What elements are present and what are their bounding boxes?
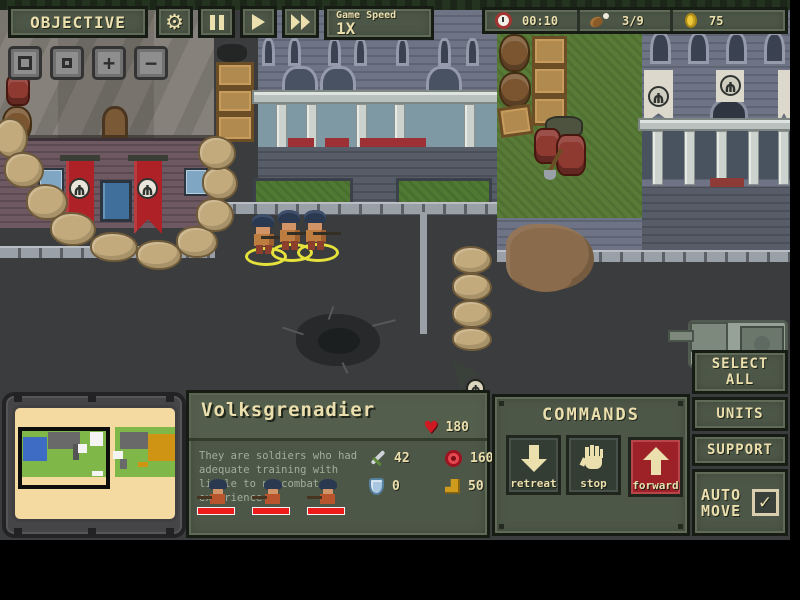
sandbag — [452, 327, 492, 351]
window — [328, 38, 341, 66]
commands-panel: COMMANDS retreat stop forward — [492, 394, 690, 536]
faction-emblem-icon: Ψ — [142, 181, 153, 196]
fast-forward-icon — [291, 14, 300, 30]
stop-hand-icon — [580, 445, 608, 475]
select-all-button[interactable]: SELECT ALL — [692, 350, 788, 394]
squad-member-card[interactable] — [307, 479, 351, 517]
resource-bar: 00:10 3/9 75 — [482, 7, 788, 34]
red-carpet — [288, 138, 314, 147]
sandbag — [90, 232, 138, 262]
play-button[interactable] — [240, 6, 277, 38]
sandbag — [136, 240, 182, 270]
sandbag — [198, 136, 236, 170]
faction-emblem-icon: Ψ — [74, 181, 85, 196]
squad-member-card[interactable] — [197, 479, 241, 517]
armor-icon — [369, 478, 384, 495]
settings-button[interactable]: ⚙ — [156, 6, 193, 38]
fast-forward-button[interactable] — [282, 6, 319, 38]
auto-move-label: AUTO MOVE — [701, 487, 751, 519]
minimap[interactable] — [12, 405, 178, 522]
objective-button[interactable]: OBJECTIVE — [8, 6, 148, 38]
boot-value: 50 — [468, 479, 484, 494]
gold-count: 75 — [709, 14, 723, 28]
zoom-in-button[interactable]: + — [92, 46, 126, 80]
red-carpet — [360, 138, 426, 147]
objective-label: OBJECTIVE — [30, 13, 126, 32]
attack-icon — [369, 450, 386, 467]
door — [100, 180, 132, 222]
health-icon: ♥ — [423, 421, 438, 435]
crate-tilted — [497, 104, 534, 138]
curb — [420, 212, 427, 334]
gear-icon: ⚙ — [165, 12, 184, 32]
sandbag — [452, 273, 492, 301]
window — [396, 38, 409, 66]
stop-label: stop — [580, 477, 607, 490]
retreat-arrow-icon — [521, 445, 547, 475]
squad-member-card[interactable] — [252, 479, 296, 517]
awning — [252, 90, 503, 104]
select-all-label: SELECT ALL — [708, 356, 772, 388]
soldier-unit[interactable] — [304, 210, 344, 262]
pause-button[interactable] — [198, 6, 235, 38]
units-button[interactable]: UNITS — [692, 397, 788, 431]
member-hp-bar — [197, 507, 235, 515]
red-carpet — [710, 178, 744, 187]
check-icon: ✓ — [758, 495, 773, 511]
play-icon — [252, 14, 265, 30]
auto-move-toggle[interactable]: AUTO MOVE ✓ — [692, 469, 788, 536]
target-icon — [445, 450, 462, 467]
retreat-label: retreat — [510, 477, 556, 490]
boot-icon — [445, 479, 460, 494]
wooden-barrel — [499, 34, 530, 72]
game-speed-value: 1X — [336, 21, 355, 36]
faction-emblem-icon: Ψ — [725, 78, 736, 93]
window — [354, 38, 367, 66]
white-banner: Ψ — [716, 70, 744, 102]
minimap-viewport[interactable] — [18, 427, 110, 489]
armor-value: 0 — [392, 479, 400, 494]
member-hp-bar — [307, 507, 345, 515]
minus-icon: − — [145, 51, 157, 75]
attack-value: 42 — [394, 451, 410, 466]
window — [726, 32, 747, 64]
retreat-button[interactable]: retreat — [506, 435, 561, 495]
game-screen: Ψ Ψ — [0, 0, 800, 600]
rubble — [217, 44, 247, 62]
minimap-panel[interactable] — [2, 392, 186, 538]
soldier-squad[interactable] — [252, 210, 372, 270]
zoom-out-button[interactable]: − — [134, 46, 168, 80]
stop-button[interactable]: stop — [566, 435, 621, 495]
unit-hp: 180 — [446, 420, 469, 435]
attic-window — [102, 106, 128, 138]
coin-icon — [685, 13, 697, 28]
red-carpet — [325, 138, 349, 147]
crate — [216, 88, 254, 114]
support-button[interactable]: SUPPORT — [692, 434, 788, 466]
red-barrel — [556, 134, 586, 176]
sandbag — [202, 166, 238, 200]
food-icon — [590, 13, 610, 29]
center-building — [258, 10, 497, 215]
target-value: 160 — [470, 451, 493, 466]
auto-move-checkbox[interactable]: ✓ — [752, 489, 779, 516]
plus-icon: + — [103, 51, 115, 75]
window — [650, 32, 671, 64]
crate — [532, 36, 567, 66]
right-building: Ψ Ψ — [642, 10, 790, 250]
sandbag — [50, 212, 96, 246]
sandbag — [196, 198, 234, 232]
support-label: SUPPORT — [707, 442, 773, 458]
window — [438, 38, 451, 66]
shovel-blade — [544, 170, 556, 180]
pause-icon — [210, 15, 215, 30]
window — [288, 38, 301, 66]
member-hp-bar — [252, 507, 290, 515]
center-view-button[interactable] — [50, 46, 84, 80]
dirt-patch — [520, 266, 572, 292]
commands-title: COMMANDS — [495, 405, 687, 425]
sandbag — [452, 300, 492, 328]
crate — [216, 62, 254, 88]
window — [688, 32, 709, 64]
timer-value: 00:10 — [522, 14, 558, 28]
crate — [532, 66, 567, 96]
forward-arrow-icon — [643, 447, 669, 477]
faction-emblem-icon: Ψ — [653, 89, 664, 104]
window — [764, 32, 785, 64]
sandbag — [4, 152, 44, 188]
clock-icon — [495, 12, 512, 29]
fullscreen-button[interactable] — [8, 46, 42, 80]
game-speed-display: Game Speed 1X — [324, 6, 434, 40]
units-label: UNITS — [716, 406, 763, 422]
ledge — [638, 118, 790, 131]
wooden-barrel — [499, 72, 531, 108]
food-count: 3/9 — [622, 14, 644, 28]
forward-button[interactable]: forward — [628, 437, 683, 497]
unit-name: Volksgrenadier — [201, 399, 375, 421]
window — [262, 38, 275, 66]
window — [466, 38, 479, 66]
sandbag — [452, 246, 492, 274]
forward-label: forward — [632, 479, 678, 492]
battlefield-viewport[interactable]: Ψ Ψ — [0, 0, 790, 540]
unit-info-panel: Volksgrenadier ♥ 180 They are soldiers w… — [186, 390, 490, 538]
